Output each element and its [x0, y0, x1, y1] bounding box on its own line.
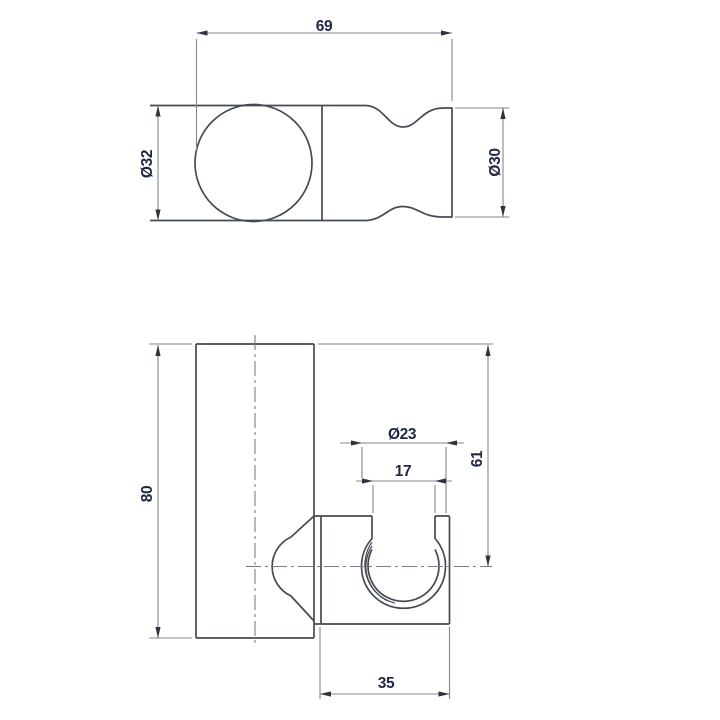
dim-69-line: [197, 33, 453, 150]
top-view: [150, 30, 510, 221]
dim-hole-diameter-23-label: Ø23: [388, 426, 417, 443]
dim-width-69-label: 69: [316, 18, 333, 35]
dim-bracket-width-35-label: 35: [378, 675, 395, 692]
dim-ball-diameter-32-label: Ø32: [139, 150, 156, 178]
dim-height-80-label: 80: [139, 486, 156, 502]
front-view: [149, 335, 493, 699]
dim-17-line: [356, 481, 452, 513]
dim-end-diameter-30-label: Ø30: [487, 148, 504, 176]
technical-drawing: 69 Ø32 Ø30 80 Ø23 17 61 35: [0, 0, 720, 720]
technical-drawing-page: 69 Ø32 Ø30 80 Ø23 17 61 35: [0, 0, 720, 720]
front-view-cradle-outer: [362, 516, 446, 608]
front-view-cone: [272, 516, 314, 621]
top-view-ball-outline: [195, 105, 312, 222]
dim-center-offset-61-label: 61: [469, 450, 486, 467]
front-view-cradle-inner: [368, 550, 439, 602]
dim-61-line: [318, 344, 493, 567]
front-view-bracket: [314, 516, 450, 624]
dim-opening-17-label: 17: [395, 463, 411, 480]
